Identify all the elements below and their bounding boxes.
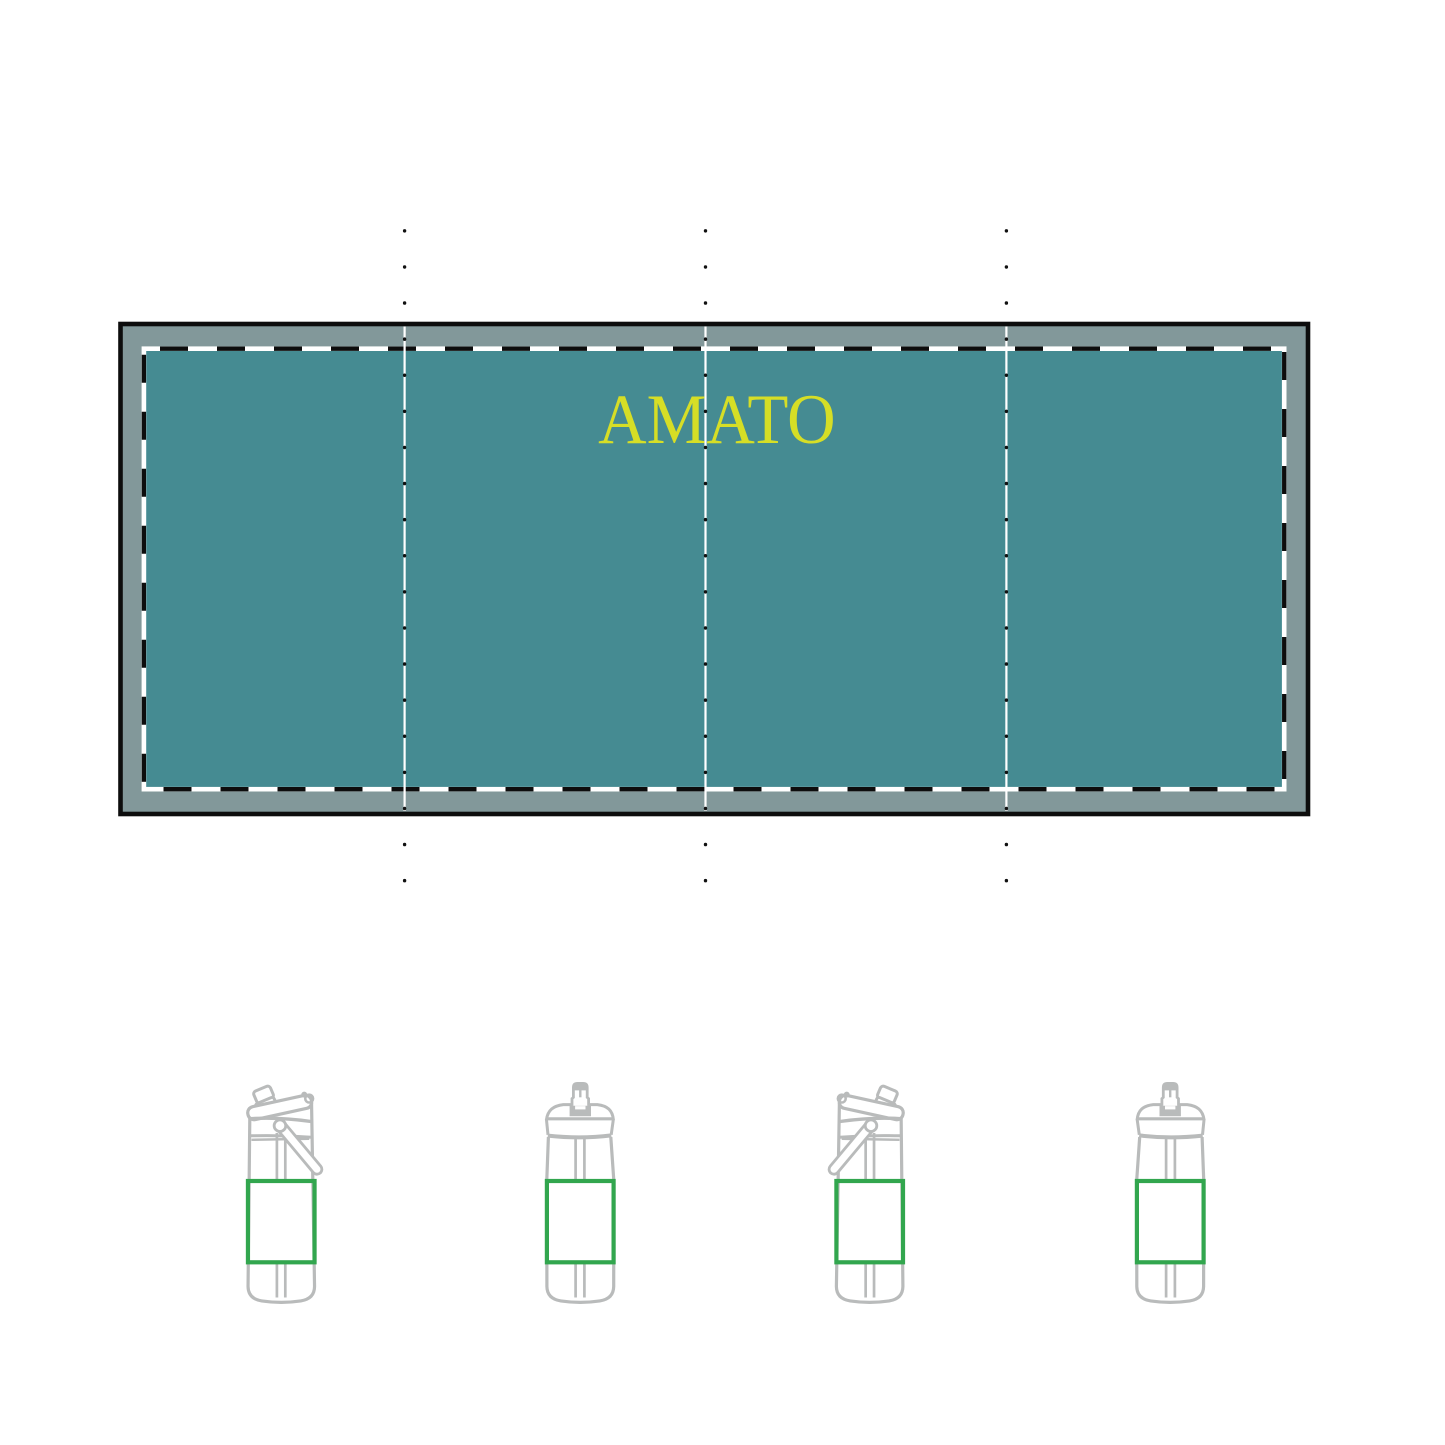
- svg-text:AMATO: AMATO: [598, 380, 836, 459]
